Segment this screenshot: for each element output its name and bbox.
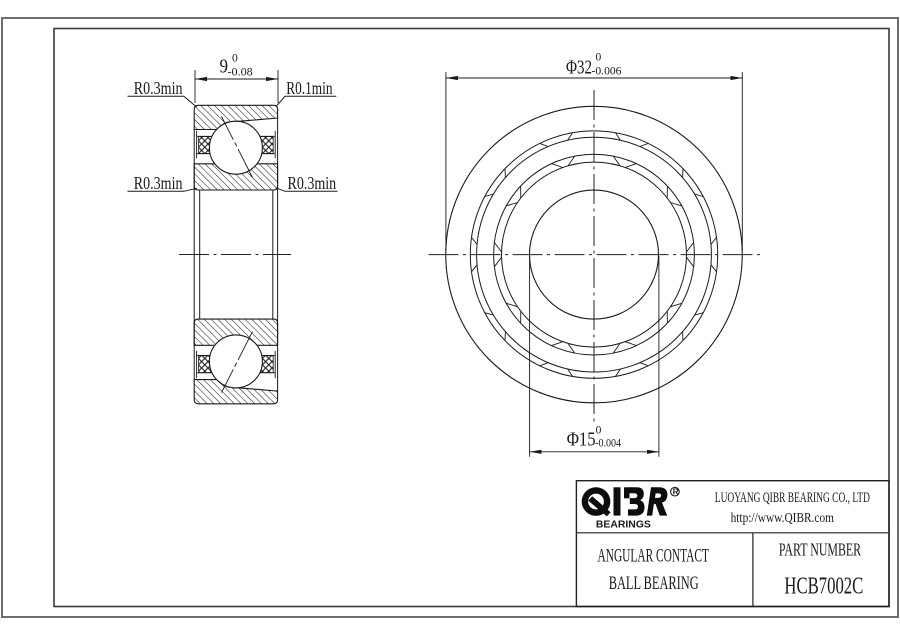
svg-text:BALL BEARING: BALL BEARING [609,573,699,594]
svg-text:ANGULAR CONTACT: ANGULAR CONTACT [598,546,710,567]
svg-text:R0.3min: R0.3min [288,173,337,193]
svg-text:HCB7002C: HCB7002C [784,572,863,599]
svg-text:-0.004: -0.004 [595,438,621,450]
svg-text:R: R [673,488,679,497]
svg-text:0: 0 [596,52,602,64]
svg-text:BEARINGS: BEARINGS [596,519,651,531]
svg-text:-0.08: -0.08 [228,67,253,79]
svg-text:R0.3min: R0.3min [134,78,183,98]
svg-text:0: 0 [232,53,238,65]
svg-text:http://www.QIBR.com: http://www.QIBR.com [731,511,834,526]
svg-text:R0.3min: R0.3min [134,173,183,193]
svg-text:R0.1min: R0.1min [286,78,332,98]
svg-text:Φ32: Φ32 [566,56,592,78]
svg-text:PART NUMBER: PART NUMBER [779,540,861,560]
svg-text:Φ15: Φ15 [567,429,596,451]
svg-text:-0.006: -0.006 [592,65,622,77]
svg-text:LUOYANG QIBR BEARING CO., LTD: LUOYANG QIBR BEARING CO., LTD [715,490,870,506]
svg-text:0: 0 [596,424,602,436]
